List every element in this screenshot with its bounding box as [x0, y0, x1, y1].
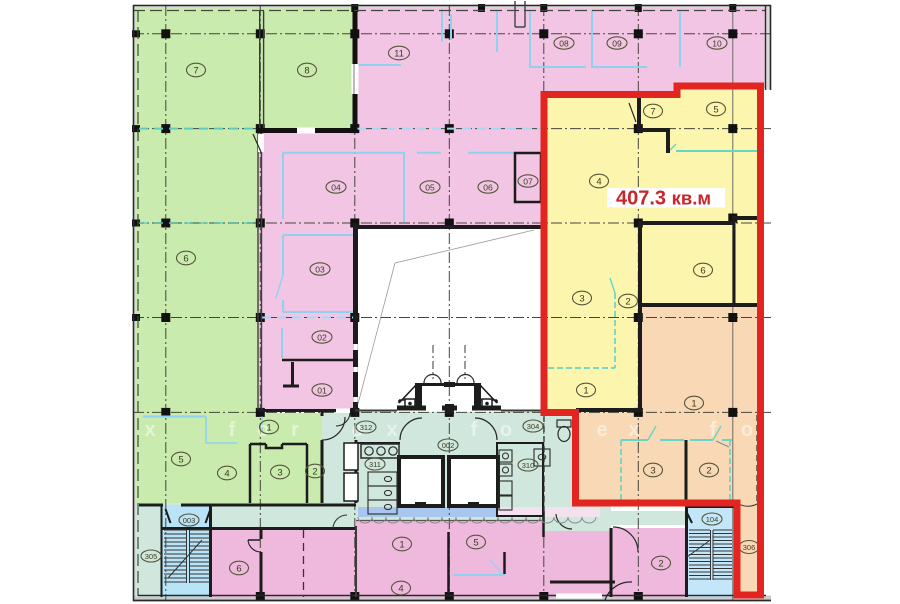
svg-text:1: 1 [399, 540, 404, 551]
svg-text:3: 3 [650, 466, 655, 477]
svg-text:407.3 кв.м: 407.3 кв.м [616, 188, 711, 210]
svg-text:f: f [229, 419, 236, 441]
svg-text:7: 7 [193, 66, 198, 77]
svg-text:5: 5 [178, 455, 183, 466]
svg-text:x: x [386, 419, 397, 441]
svg-text:8: 8 [304, 66, 309, 77]
svg-text:10: 10 [712, 39, 722, 49]
svg-text:05: 05 [425, 183, 435, 193]
svg-text:4: 4 [224, 469, 229, 480]
svg-text:4: 4 [398, 584, 403, 595]
svg-text:1: 1 [266, 423, 271, 434]
svg-text:310: 310 [522, 461, 535, 470]
svg-text:104: 104 [706, 515, 719, 524]
svg-text:003: 003 [183, 516, 196, 525]
svg-text:e: e [596, 419, 607, 441]
svg-text:r: r [291, 419, 299, 441]
svg-text:06: 06 [483, 183, 493, 193]
svg-text:08: 08 [559, 39, 569, 49]
svg-text:o: o [500, 419, 512, 441]
svg-text:f: f [710, 419, 717, 441]
svg-text:09: 09 [612, 39, 622, 49]
svg-text:312: 312 [360, 423, 373, 432]
svg-text:5: 5 [713, 105, 718, 116]
svg-text:04: 04 [331, 183, 341, 193]
svg-text:6: 6 [236, 564, 241, 575]
svg-text:x: x [144, 419, 155, 441]
svg-text:11: 11 [394, 49, 404, 60]
svg-text:3: 3 [579, 294, 584, 305]
svg-text:03: 03 [315, 265, 325, 275]
svg-text:304: 304 [527, 422, 540, 431]
svg-text:306: 306 [743, 543, 756, 552]
svg-text:01: 01 [317, 386, 327, 396]
svg-text:o: o [741, 419, 753, 441]
svg-text:5: 5 [473, 538, 478, 549]
svg-text:4: 4 [596, 177, 601, 188]
svg-text:6: 6 [183, 254, 188, 265]
svg-text:2: 2 [706, 466, 711, 477]
svg-text:305: 305 [145, 552, 158, 561]
svg-text:2: 2 [658, 559, 663, 570]
svg-text:311: 311 [369, 460, 381, 469]
svg-text:x: x [628, 419, 639, 441]
svg-text:3: 3 [277, 468, 282, 479]
svg-text:f: f [471, 419, 478, 441]
svg-text:07: 07 [523, 177, 533, 187]
svg-text:7: 7 [650, 107, 655, 118]
svg-text:002: 002 [442, 441, 455, 450]
svg-text:2: 2 [625, 297, 630, 308]
svg-text:1: 1 [583, 386, 588, 397]
svg-text:6: 6 [700, 266, 705, 277]
svg-text:1: 1 [691, 399, 696, 410]
svg-text:02: 02 [317, 333, 327, 343]
svg-text:2: 2 [312, 467, 317, 478]
